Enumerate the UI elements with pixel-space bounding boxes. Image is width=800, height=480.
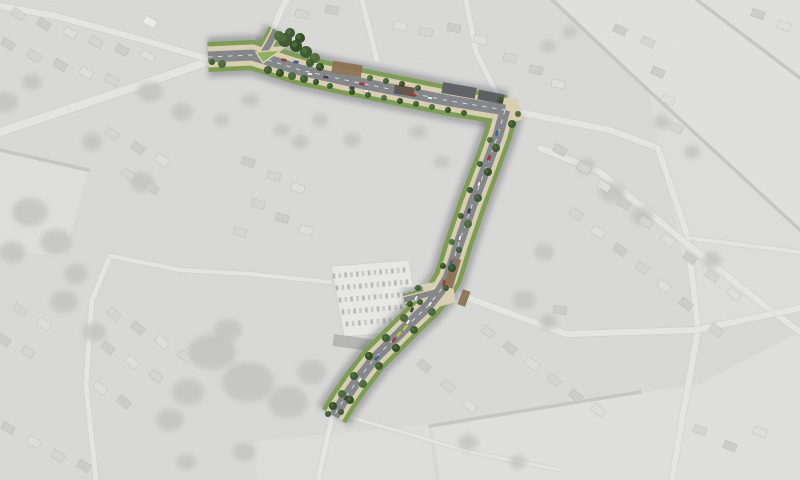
- car: [363, 89, 368, 92]
- street-tree-highlight: [416, 286, 419, 289]
- street-tree-highlight: [384, 79, 387, 82]
- map-canvas: [0, 0, 800, 480]
- street-tree-highlight: [393, 345, 397, 349]
- car: [442, 280, 445, 285]
- street-tree-highlight: [219, 61, 223, 65]
- street-tree-highlight: [265, 67, 269, 71]
- street-tree-highlight: [328, 84, 331, 87]
- street-tree-highlight: [339, 410, 342, 413]
- street-tree-highlight: [457, 248, 460, 251]
- street-tree-highlight: [314, 80, 317, 83]
- street-tree-highlight: [401, 315, 405, 319]
- street-tree-highlight: [509, 121, 513, 125]
- street-tree-highlight: [465, 221, 469, 225]
- street-tree-highlight: [382, 96, 385, 99]
- street-tree-highlight: [210, 60, 213, 63]
- street-tree-highlight: [430, 105, 433, 108]
- street-tree-highlight: [408, 302, 411, 305]
- street-tree-highlight: [297, 35, 302, 40]
- street-tree-highlight: [289, 73, 293, 77]
- street-tree-highlight: [488, 138, 491, 141]
- car: [349, 86, 354, 89]
- street-tree-highlight: [475, 195, 479, 199]
- street-tree-highlight: [418, 300, 421, 303]
- street-tree-highlight: [478, 162, 481, 165]
- street-tree-highlight: [360, 381, 364, 385]
- street-tree-highlight: [368, 76, 371, 79]
- street-tree-highlight: [414, 102, 417, 105]
- car: [281, 58, 286, 61]
- street-tree-highlight: [468, 188, 471, 191]
- street-tree-highlight: [302, 48, 307, 53]
- street-tree-highlight: [485, 169, 489, 173]
- street-tree-highlight: [312, 55, 317, 60]
- street-tree-highlight: [398, 99, 401, 102]
- street-tree-highlight: [277, 70, 281, 74]
- street-tree-highlight: [287, 30, 292, 35]
- street-tree-highlight: [292, 42, 297, 47]
- street-tree-highlight: [498, 98, 501, 101]
- car: [359, 82, 364, 85]
- car: [411, 93, 416, 96]
- street-tree-highlight: [516, 112, 519, 115]
- street-tree-highlight: [400, 82, 403, 85]
- car: [307, 72, 312, 75]
- street-tree-highlight: [339, 391, 343, 395]
- street-tree-highlight: [462, 111, 465, 114]
- street-tree-highlight: [301, 76, 305, 80]
- street-tree-highlight: [376, 363, 380, 367]
- street-tree-highlight: [366, 93, 369, 96]
- street-tree-highlight: [446, 108, 449, 111]
- street-tree-highlight: [450, 240, 453, 243]
- street-tree-highlight: [411, 327, 415, 331]
- street-tree-highlight: [330, 403, 334, 407]
- car: [427, 96, 432, 99]
- street-tree-highlight: [493, 145, 497, 149]
- street-tree-highlight: [429, 309, 433, 313]
- street-tree-highlight: [351, 373, 355, 377]
- street-tree-highlight: [350, 90, 353, 93]
- street-tree-highlight: [441, 264, 444, 267]
- car: [293, 60, 298, 63]
- street-tree-highlight: [459, 214, 462, 217]
- street-tree-highlight: [307, 60, 311, 64]
- street-tree-highlight: [366, 353, 370, 357]
- street-tree-highlight: [276, 33, 281, 38]
- street-tree-highlight: [317, 64, 321, 68]
- car: [323, 75, 328, 78]
- street-tree-highlight: [326, 412, 329, 415]
- car: [395, 90, 400, 93]
- street-tree-highlight: [383, 335, 387, 339]
- street-tree-highlight: [444, 286, 447, 289]
- aerial-masterplan-image: [0, 0, 800, 480]
- street-tree-highlight: [416, 86, 419, 89]
